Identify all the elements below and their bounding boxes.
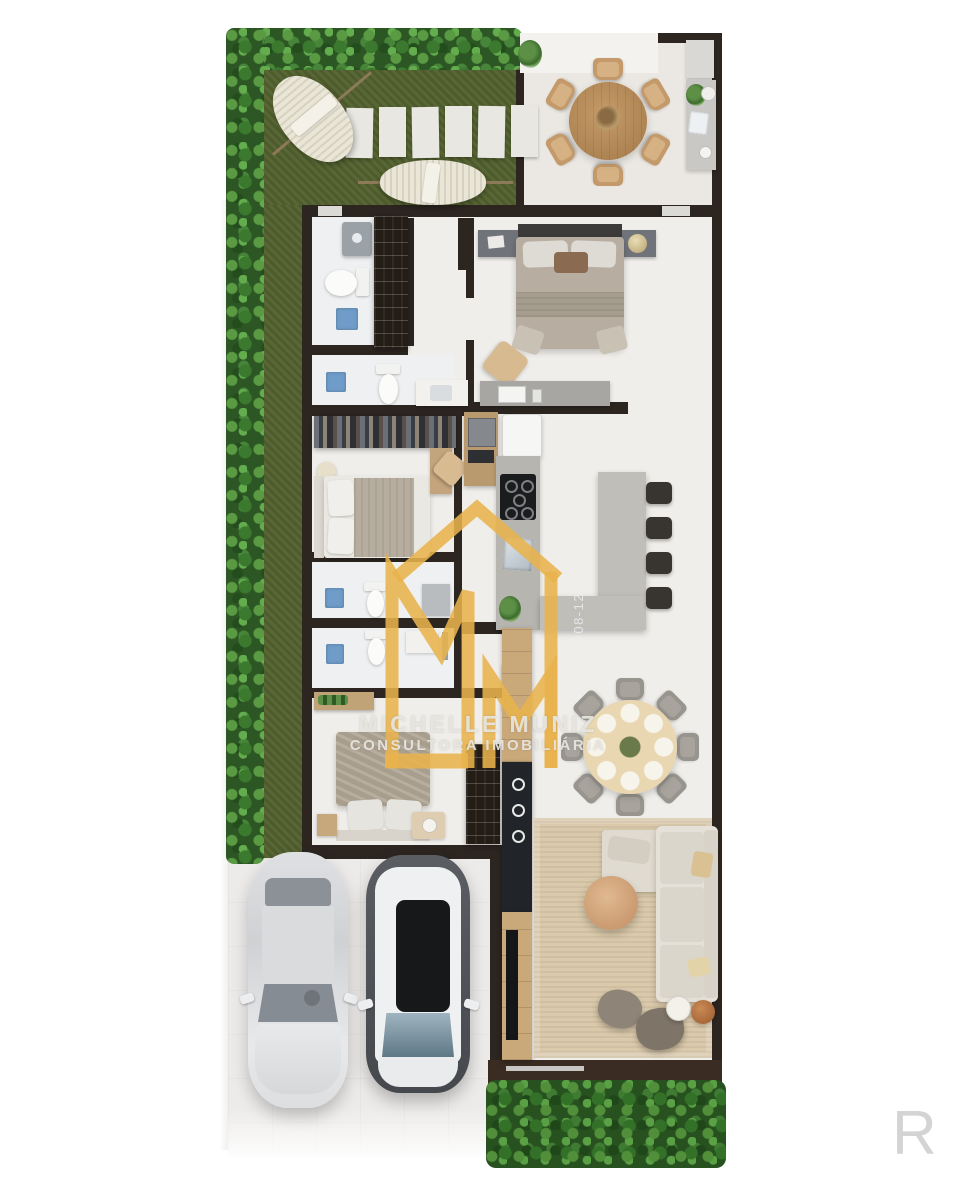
bar-stool	[646, 482, 672, 504]
sedan-detail	[304, 990, 320, 1006]
ledge-rail-1	[506, 1066, 584, 1071]
patio-chair	[593, 164, 623, 186]
stepping-stone	[445, 106, 472, 157]
wall-left-outer	[302, 205, 312, 862]
suv-sunroof	[396, 900, 450, 1012]
wall-hall-v	[458, 218, 466, 270]
oven-module	[468, 418, 496, 447]
suv-windshield	[382, 1013, 454, 1057]
patio-chair	[593, 58, 623, 80]
sofa-cushion	[690, 851, 714, 879]
sedan-hood	[255, 1024, 341, 1094]
console-decor	[512, 830, 525, 843]
fridge	[502, 414, 542, 458]
bar-stool	[646, 587, 672, 609]
shower-tray	[336, 308, 358, 330]
stepping-stone	[412, 107, 440, 158]
wall-master-left-a	[466, 218, 474, 298]
toilet-tank	[376, 364, 400, 374]
sedan-windshield	[258, 984, 338, 1022]
dining-chair	[677, 733, 699, 761]
wall-house-top	[302, 205, 712, 217]
burner	[505, 480, 518, 493]
shower-tray	[325, 588, 344, 608]
suv-hood	[378, 1057, 458, 1087]
hedge-bottom	[486, 1080, 726, 1168]
potted-plant	[518, 40, 542, 68]
shower-tray	[326, 644, 344, 664]
door-gap-top-right	[662, 206, 690, 216]
pillow	[327, 479, 355, 516]
outdoor-sink	[688, 111, 710, 135]
side-table-white	[666, 996, 691, 1021]
silver-sedan	[248, 852, 348, 1108]
microwave-module	[468, 450, 494, 463]
nightstand-decor	[487, 235, 504, 249]
shower-tray	[326, 372, 346, 392]
dining-chair	[616, 678, 644, 700]
bar-stool	[646, 552, 672, 574]
outdoor-cabinet	[686, 40, 714, 78]
bar-stool	[646, 517, 672, 539]
sofa-seat	[660, 887, 704, 942]
bedside-lamp	[628, 234, 647, 253]
toilet-tank	[356, 268, 369, 296]
console-decor	[512, 804, 525, 817]
side-lawn-strip	[258, 205, 304, 862]
accent-cushion	[554, 252, 588, 273]
bed2-headboard	[314, 476, 324, 558]
floorplan-render: MICHELLE MUNIZ CONSULTORA IMOBILIÁRIA C/…	[0, 0, 960, 1200]
brand-tagline: CONSULTORA IMOBILIÁRIA	[318, 737, 638, 754]
hedge-left	[226, 28, 264, 864]
license-code: C/7908-12	[571, 575, 587, 685]
stepping-stone	[511, 105, 538, 157]
brand-name: MICHELLE MUNIZ	[318, 711, 638, 738]
driveway-fade	[228, 1108, 500, 1170]
side-table-copper	[691, 1000, 715, 1024]
wall-garage-side	[490, 858, 502, 1064]
door-gap-top-left	[318, 206, 342, 216]
pillow	[327, 517, 355, 554]
dining-chair	[616, 794, 644, 816]
coffee-table	[584, 876, 638, 930]
table-centerpiece	[596, 106, 622, 132]
master-bed-headboard	[518, 224, 622, 237]
toilet	[325, 270, 357, 296]
stepping-stone	[379, 107, 406, 157]
bed-runner	[516, 292, 624, 317]
toilet	[379, 374, 398, 404]
pillow	[347, 799, 384, 831]
burner	[521, 480, 534, 493]
open-wardrobe	[314, 416, 456, 448]
tv-screen	[506, 930, 518, 1040]
counter-bowl	[699, 146, 712, 159]
sedan-roof	[262, 906, 334, 984]
kitchen-island	[598, 472, 646, 600]
sedan-rear-window	[265, 878, 331, 906]
phone	[532, 389, 542, 403]
stepping-stone	[478, 106, 506, 158]
shelf-plants	[318, 695, 348, 705]
bench-tray	[422, 818, 437, 833]
white-suv	[366, 855, 470, 1093]
sink-basin	[430, 385, 452, 401]
laptop	[498, 386, 526, 403]
side-table	[317, 814, 337, 836]
counter-plate	[701, 86, 716, 101]
sink-basin	[352, 233, 362, 243]
corner-watermark-letter: R	[892, 1098, 937, 1169]
shoe-closet	[374, 216, 408, 348]
hedge-top	[228, 28, 522, 70]
